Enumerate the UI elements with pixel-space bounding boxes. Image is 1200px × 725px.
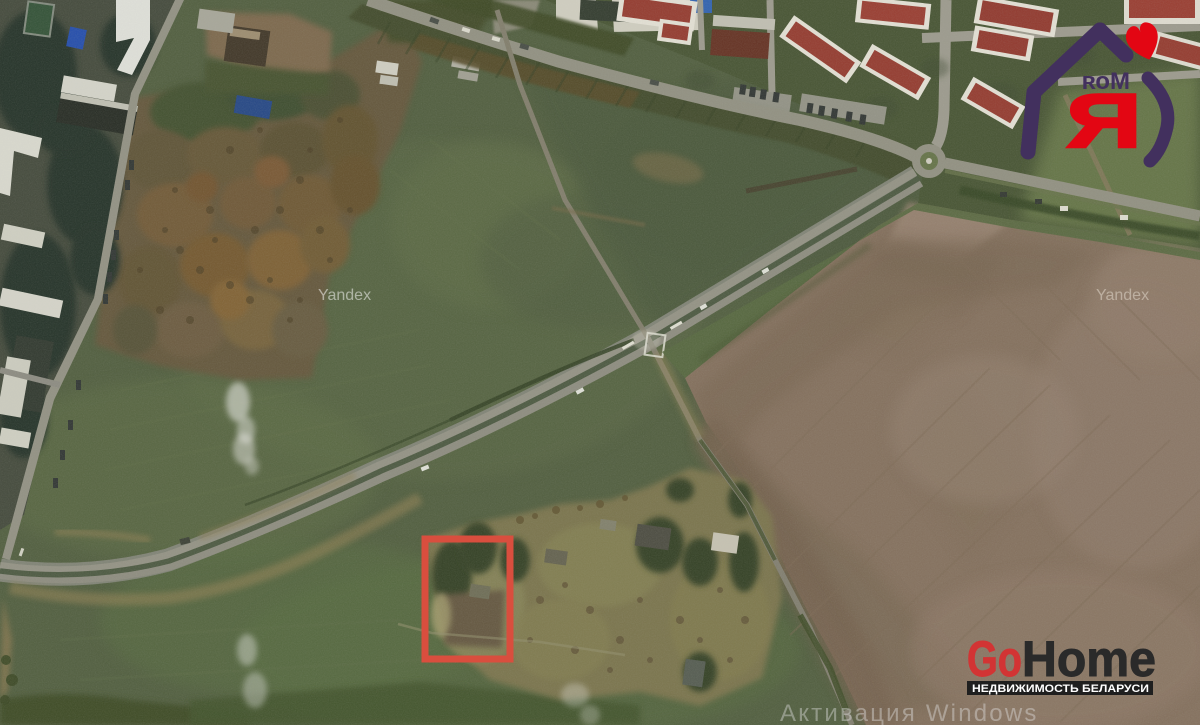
svg-text:Home: Home bbox=[1022, 631, 1156, 687]
svg-text:Yandex: Yandex bbox=[318, 287, 371, 304]
svg-text:Yandex: Yandex bbox=[1096, 287, 1149, 304]
svg-text:НЕДВИЖИМОСТЬ БЕЛАРУСИ: НЕДВИЖИМОСТЬ БЕЛАРУСИ bbox=[972, 683, 1149, 695]
svg-text:Go: Go bbox=[967, 631, 1022, 687]
svg-text:R: R bbox=[1066, 79, 1142, 164]
svg-text:Активация Windows: Активация Windows bbox=[780, 700, 1039, 725]
